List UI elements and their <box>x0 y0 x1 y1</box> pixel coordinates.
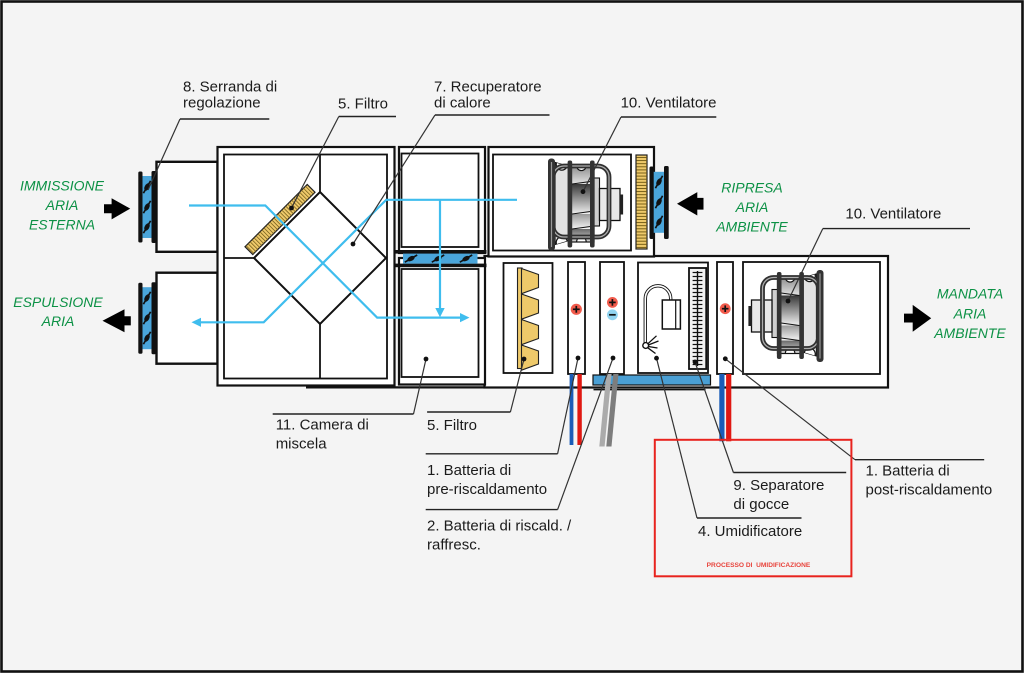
svg-text:ARIA: ARIA <box>735 199 769 215</box>
svg-text:ARIA: ARIA <box>41 313 75 329</box>
svg-text:pre-riscaldamento: pre-riscaldamento <box>427 481 547 498</box>
svg-text:post-riscaldamento: post-riscaldamento <box>866 482 993 499</box>
svg-text:ESTERNA: ESTERNA <box>29 216 95 232</box>
svg-text:11. Camera di: 11. Camera di <box>276 417 369 434</box>
svg-text:IMMISSIONE: IMMISSIONE <box>20 178 105 194</box>
svg-text:4. Umidificatore: 4. Umidificatore <box>698 523 802 540</box>
svg-text:ARIA: ARIA <box>45 197 79 213</box>
svg-text:2. Batteria di riscald. /: 2. Batteria di riscald. / <box>427 518 572 535</box>
svg-text:MANDATA: MANDATA <box>937 286 1003 302</box>
svg-text:5. Filtro: 5. Filtro <box>338 95 388 112</box>
svg-text:1. Batteria di: 1. Batteria di <box>427 462 511 479</box>
svg-text:regolazione: regolazione <box>183 95 261 112</box>
svg-text:di gocce: di gocce <box>733 496 789 513</box>
svg-text:RIPRESA: RIPRESA <box>721 179 782 195</box>
svg-text:di calore: di calore <box>434 95 491 112</box>
svg-text:AMBIENTE: AMBIENTE <box>715 218 788 234</box>
svg-text:PROCESSO DI UMIDIFICAZIONE: PROCESSO DI UMIDIFICAZIONE <box>707 562 811 569</box>
svg-text:1. Batteria di: 1. Batteria di <box>866 463 950 480</box>
svg-text:9. Separatore: 9. Separatore <box>733 477 824 494</box>
svg-text:ARIA: ARIA <box>953 305 987 321</box>
svg-text:miscela: miscela <box>276 436 328 453</box>
svg-text:7. Recuperatore: 7. Recuperatore <box>434 79 542 96</box>
svg-text:raffresc.: raffresc. <box>427 537 481 554</box>
svg-text:8. Serranda di: 8. Serranda di <box>183 79 277 96</box>
svg-text:ESPULSIONE: ESPULSIONE <box>13 294 103 310</box>
svg-text:AMBIENTE: AMBIENTE <box>933 325 1006 341</box>
svg-text:10. Ventilatore: 10. Ventilatore <box>621 95 717 112</box>
svg-text:5. Filtro: 5. Filtro <box>427 417 477 434</box>
svg-text:10. Ventilatore: 10. Ventilatore <box>845 206 941 223</box>
